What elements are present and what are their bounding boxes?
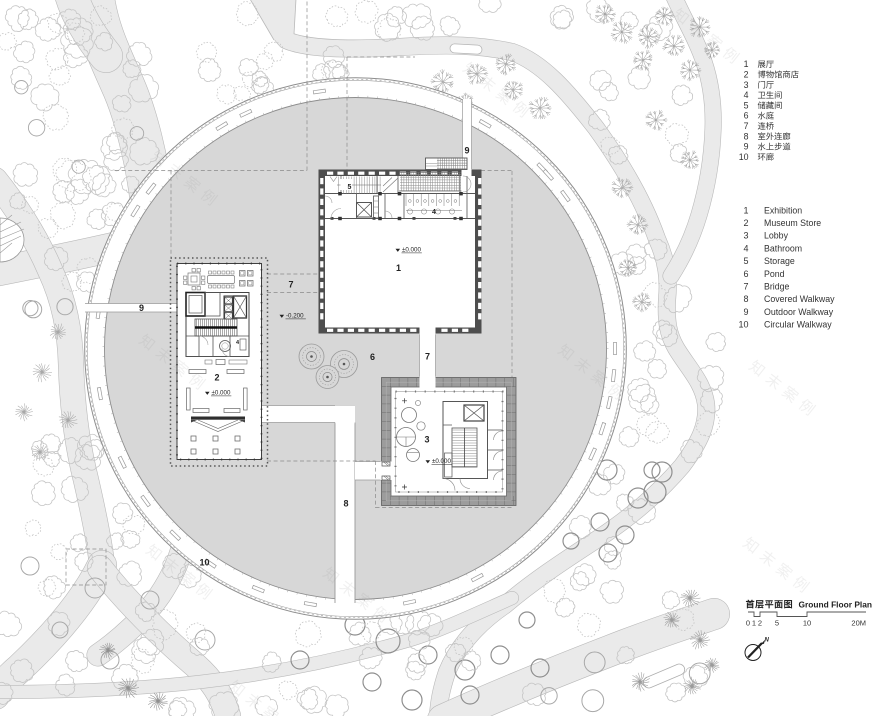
svg-text:3: 3 xyxy=(424,435,429,445)
svg-text:Exhibition: Exhibition xyxy=(764,205,802,215)
svg-text:-0.200: -0.200 xyxy=(286,313,304,320)
svg-text:6: 6 xyxy=(370,352,375,362)
svg-text:6: 6 xyxy=(743,269,748,279)
svg-text:4: 4 xyxy=(744,90,749,100)
svg-text:1: 1 xyxy=(743,205,748,215)
svg-text:5: 5 xyxy=(744,100,749,110)
svg-text:8: 8 xyxy=(343,499,348,509)
svg-text:Outdoor Walkway: Outdoor Walkway xyxy=(764,307,834,317)
svg-text:9: 9 xyxy=(464,146,469,156)
svg-text:±0.000: ±0.000 xyxy=(402,247,421,254)
svg-text:9: 9 xyxy=(139,303,144,313)
svg-text:20M: 20M xyxy=(851,619,866,628)
svg-text:10: 10 xyxy=(738,320,748,330)
svg-text:Circular Walkway: Circular Walkway xyxy=(764,320,832,330)
svg-text:3: 3 xyxy=(743,231,748,241)
svg-text:10: 10 xyxy=(199,558,209,568)
svg-text:9: 9 xyxy=(744,142,749,152)
svg-text:8: 8 xyxy=(744,131,749,141)
svg-text:6: 6 xyxy=(744,111,749,121)
svg-text:2: 2 xyxy=(743,218,748,228)
svg-text:N: N xyxy=(765,638,770,644)
svg-text:2: 2 xyxy=(758,619,762,628)
svg-text:Covered Walkway: Covered Walkway xyxy=(764,294,835,304)
svg-text:Bathroom: Bathroom xyxy=(764,243,802,253)
svg-text:2: 2 xyxy=(744,70,749,80)
svg-text:1: 1 xyxy=(396,263,401,273)
svg-text:Storage: Storage xyxy=(764,256,795,266)
svg-text:10: 10 xyxy=(739,152,749,162)
svg-text:Lobby: Lobby xyxy=(764,231,789,241)
svg-text:4: 4 xyxy=(432,209,436,216)
svg-text:3: 3 xyxy=(744,80,749,90)
svg-text:Ground Floor Plan: Ground Floor Plan xyxy=(799,600,873,610)
svg-text:2: 2 xyxy=(214,373,219,383)
svg-text:5: 5 xyxy=(348,184,352,191)
svg-text:1: 1 xyxy=(752,619,756,628)
svg-text:5: 5 xyxy=(743,256,748,266)
svg-text:Museum Store: Museum Store xyxy=(764,218,821,228)
svg-text:7: 7 xyxy=(743,282,748,292)
svg-text:7: 7 xyxy=(425,352,430,362)
svg-text:1: 1 xyxy=(744,59,749,69)
svg-text:Pond: Pond xyxy=(764,269,785,279)
svg-text:7: 7 xyxy=(288,280,293,290)
svg-text:0: 0 xyxy=(746,619,750,628)
svg-text:8: 8 xyxy=(743,294,748,304)
svg-text:7: 7 xyxy=(744,121,749,131)
svg-text:±0.000: ±0.000 xyxy=(432,458,451,465)
svg-text:4: 4 xyxy=(743,243,748,253)
svg-text:±0.000: ±0.000 xyxy=(212,390,231,397)
svg-text:9: 9 xyxy=(743,307,748,317)
svg-text:10: 10 xyxy=(803,619,811,628)
svg-text:Bridge: Bridge xyxy=(764,282,790,292)
svg-text:5: 5 xyxy=(775,619,779,628)
